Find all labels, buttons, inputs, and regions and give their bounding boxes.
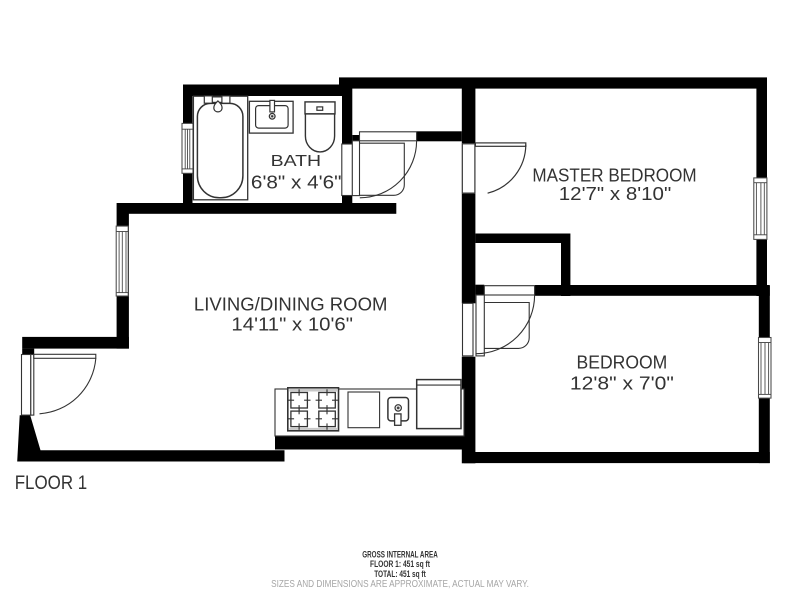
svg-text:14'11" x 10'6": 14'11" x 10'6" [231, 313, 353, 334]
svg-text:BEDROOM: BEDROOM [577, 352, 668, 373]
svg-text:GROSS INTERNAL AREA: GROSS INTERNAL AREA [362, 549, 438, 559]
svg-text:12'8" x 7'0": 12'8" x 7'0" [570, 373, 674, 394]
svg-text:FLOOR 1: FLOOR 1 [15, 472, 88, 494]
svg-text:BATH: BATH [271, 153, 322, 170]
svg-text:12'7" x 8'10": 12'7" x 8'10" [559, 183, 672, 204]
svg-text:SIZES AND DIMENSIONS ARE APPRO: SIZES AND DIMENSIONS ARE APPROXIMATE, AC… [271, 578, 529, 590]
svg-text:LIVING/DINING ROOM: LIVING/DINING ROOM [194, 294, 388, 315]
svg-text:FLOOR 1: 451 sq ft: FLOOR 1: 451 sq ft [370, 559, 430, 569]
svg-text:6'8" x 4'6": 6'8" x 4'6" [251, 172, 342, 193]
